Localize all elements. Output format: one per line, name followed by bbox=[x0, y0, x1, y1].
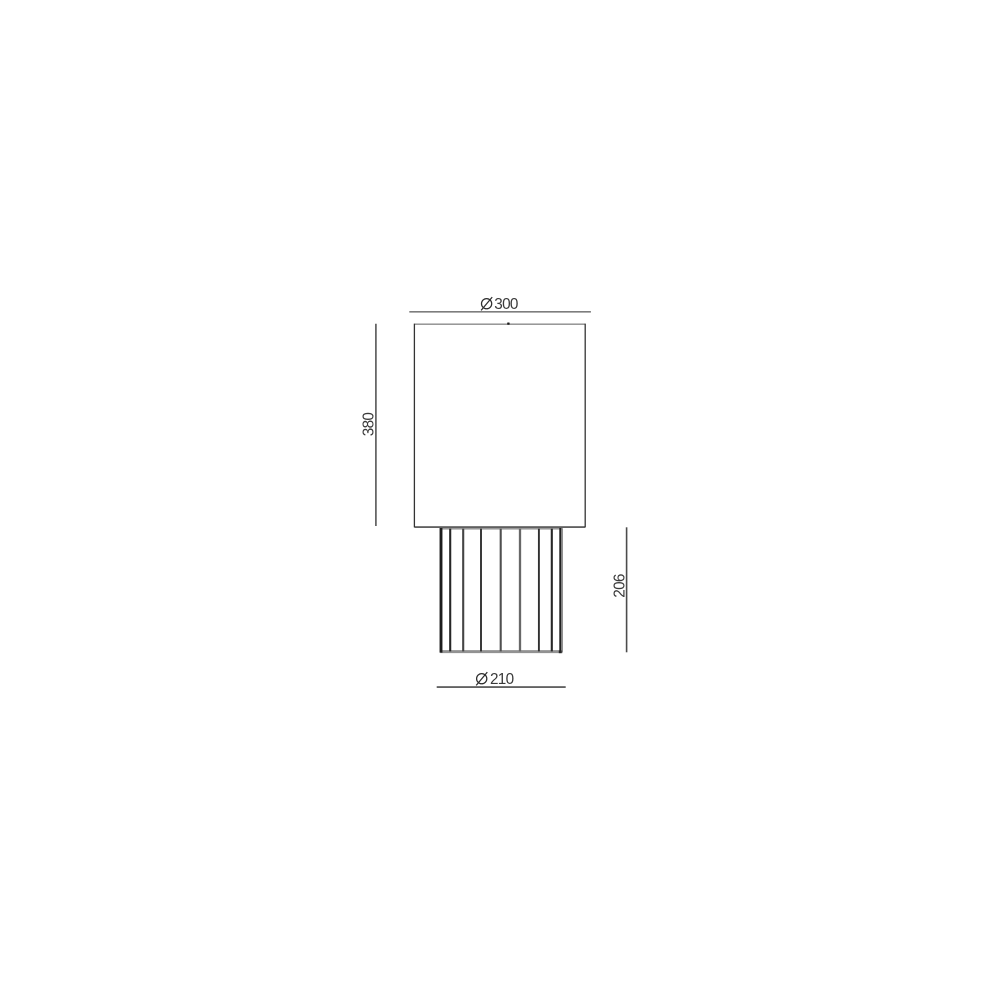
svg-text:210: 210 bbox=[490, 671, 514, 688]
svg-text:380: 380 bbox=[360, 413, 377, 437]
svg-text:206: 206 bbox=[611, 574, 628, 598]
svg-text:300: 300 bbox=[494, 296, 518, 313]
